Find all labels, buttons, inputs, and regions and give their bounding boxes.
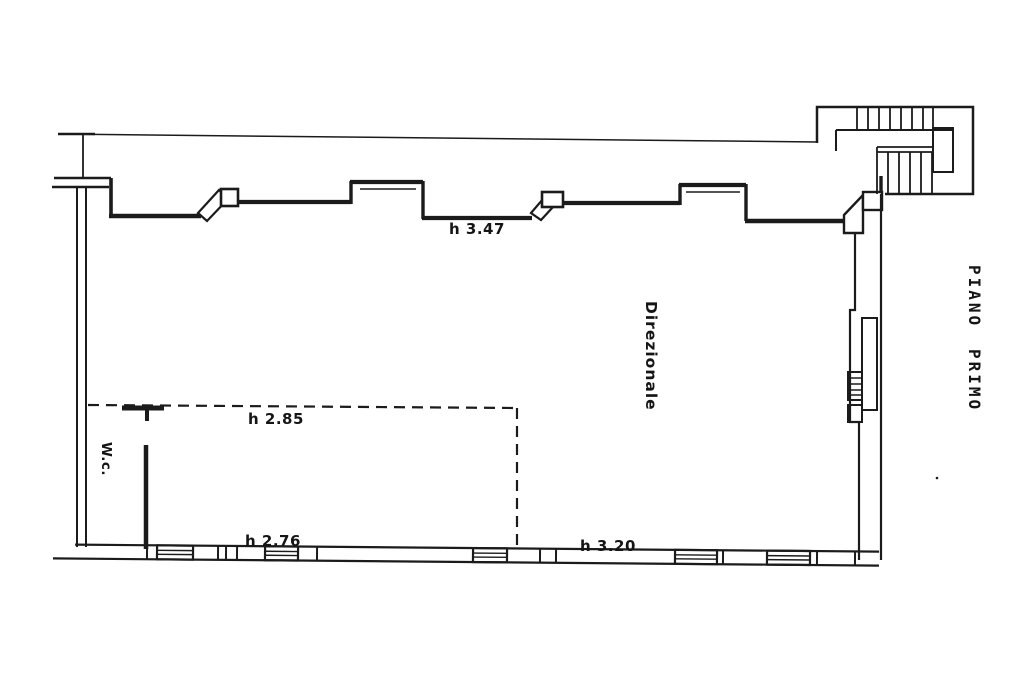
- height-label-south-west: h 2.76: [245, 532, 301, 550]
- south-window-4: [675, 550, 717, 564]
- height-label-wc-zone: h 2.85: [248, 410, 304, 428]
- stair-door-pier: [863, 192, 882, 210]
- east-wall: [848, 194, 881, 560]
- south-wall: [53, 544, 879, 565]
- stair-treads-upper-flight: [857, 108, 933, 130]
- boundary-line-top: [58, 134, 818, 142]
- boundary-lines: [58, 134, 818, 177]
- west-wall: [52, 178, 111, 547]
- east-window-inner-frame: [862, 318, 877, 410]
- wc-room-label: W.c.: [98, 442, 114, 476]
- room-label-direzionale: Direzionale: [642, 301, 660, 411]
- north-wall-pier-2: [542, 192, 563, 207]
- north-wall-pier-1: [221, 189, 238, 206]
- stair-mid-divider: [877, 147, 933, 152]
- south-window-3: [473, 548, 507, 562]
- stair-treads-lower-flight: [877, 147, 932, 194]
- east-wall-inner-face: [850, 233, 859, 560]
- south-window-1: [157, 545, 193, 559]
- wc-partition: [122, 408, 164, 549]
- floor-plan-page: h 3.47 h 2.85 h 2.76 h 3.20 W.c. Direzio…: [0, 0, 1024, 683]
- height-label-north-wall: h 3.47: [449, 220, 505, 238]
- stair-outer-wall: [817, 107, 973, 194]
- staircase: [817, 107, 973, 194]
- floor-title-line2: PRIMO: [965, 349, 984, 412]
- north-wall-chamfer-3: [844, 195, 863, 233]
- south-window-5: [767, 551, 810, 565]
- floor-plan-drawing: h 3.47 h 2.85 h 2.76 h 3.20 W.c. Direzio…: [0, 0, 1024, 683]
- height-label-south-east: h 3.20: [580, 537, 636, 555]
- scan-speck: [936, 477, 939, 480]
- stair-newel-box: [933, 128, 953, 172]
- floor-title-line1: PIANO: [965, 265, 984, 328]
